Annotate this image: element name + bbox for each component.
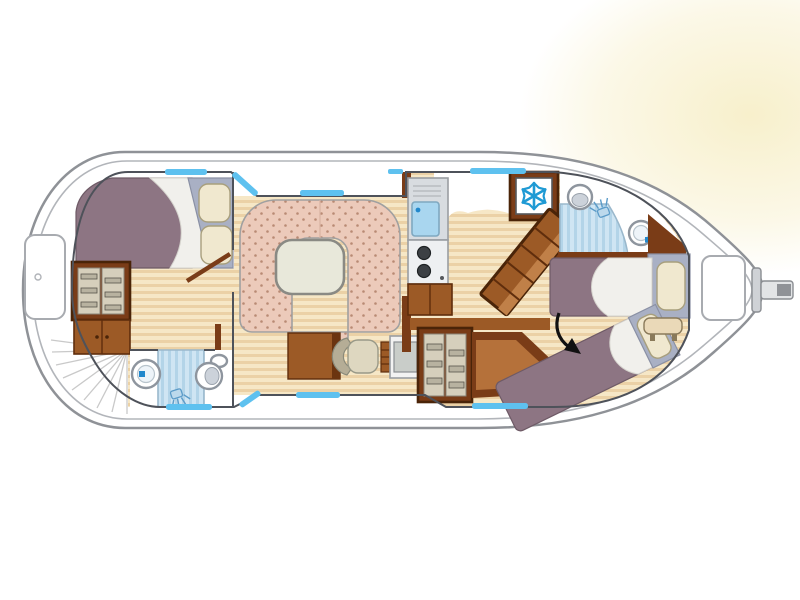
table-top: [644, 318, 682, 334]
desk-chair: [332, 338, 378, 375]
aft-single-bed-right: [550, 254, 690, 318]
stove-burner: [418, 265, 431, 278]
cabinet-knob: [105, 335, 109, 339]
toilet-bowl: [572, 194, 588, 207]
rudder-post: [752, 268, 761, 312]
stern-locker: [702, 256, 745, 320]
galley: [408, 178, 452, 315]
bow-bathroom: [130, 350, 234, 409]
mid-wardrobe: [418, 328, 472, 402]
bow-locker: [25, 235, 65, 319]
step-ladder: [381, 342, 390, 372]
tiller-grip: [777, 284, 791, 296]
cabinet-knob: [95, 335, 99, 339]
window-strip: [165, 169, 207, 175]
tiller: [752, 268, 793, 312]
chair-seat: [348, 340, 378, 373]
floor-plan-canvas: [0, 0, 800, 600]
stove-knob: [440, 276, 444, 280]
galley-sink: [412, 202, 439, 236]
pillow: [657, 262, 685, 310]
bow-double-bed: [76, 178, 233, 268]
window-strip: [388, 169, 403, 174]
toilet-bowl: [205, 368, 219, 385]
sink-faucet: [416, 208, 421, 213]
salon-table: [276, 240, 344, 294]
stove-burner: [418, 247, 431, 260]
window-strip: [300, 190, 344, 196]
window-strip: [470, 168, 526, 174]
window-strip: [166, 404, 212, 410]
bed-sheet-fold: [592, 258, 653, 316]
window-strip: [296, 392, 340, 398]
window-strip: [472, 403, 528, 409]
faucet: [139, 371, 145, 377]
bathroom-wall-stub: [215, 324, 221, 350]
bow-wardrobe: [72, 262, 130, 320]
boat-floor-plan: [0, 0, 800, 600]
pillow: [199, 184, 230, 222]
